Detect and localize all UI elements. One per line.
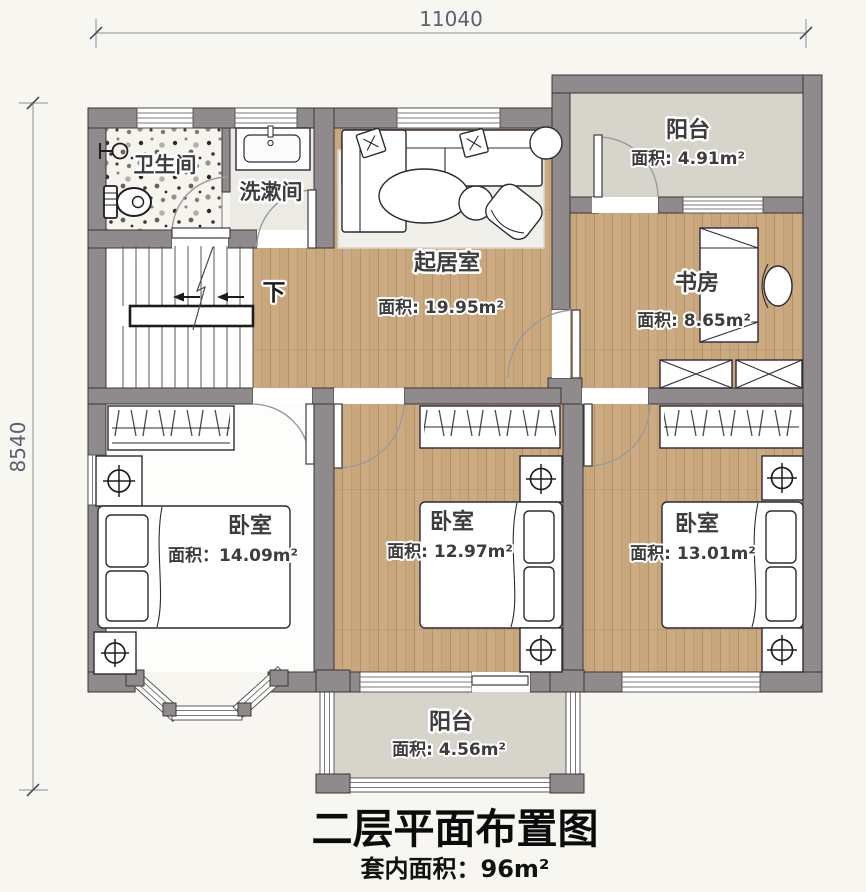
page-subtitle: 套内面积：96m² xyxy=(361,855,550,883)
living-room-area: 面积: 19.95m² xyxy=(378,298,504,318)
wall-balcony-study-b xyxy=(658,197,683,213)
balcony-pier-tr xyxy=(550,670,584,692)
wall-bottom-d xyxy=(760,672,822,692)
wall-bathroom-bottom-a xyxy=(88,230,172,248)
bedroom-right-area: 面积: 13.01m² xyxy=(630,544,756,564)
wardrobe-icon xyxy=(660,406,803,448)
balcony-pier-tl xyxy=(316,670,350,692)
bedroom-middle-area: 面积: 12.97m² xyxy=(387,542,513,562)
balcony-top-floor xyxy=(570,93,803,197)
living-room-furniture xyxy=(338,127,562,248)
balcony-pier-bl xyxy=(316,774,350,793)
side-table-icon xyxy=(530,127,562,159)
wardrobe-icon xyxy=(420,406,560,448)
window-top-1 xyxy=(137,108,193,128)
balcony-bottom-window-left xyxy=(320,690,334,778)
nightstand-icon xyxy=(762,456,803,500)
dimension-left-value: 8540 xyxy=(6,422,30,473)
wardrobe-icon xyxy=(108,406,234,450)
washroom-label: 洗漱间 xyxy=(240,180,303,204)
nightstand-icon xyxy=(96,456,142,506)
window-balcony-study xyxy=(683,197,763,213)
balcony-top-label: 阳台 xyxy=(666,117,710,143)
bedroom-left-area: 面积：14.09m² xyxy=(168,546,298,566)
wall-bathroom-bottom-b xyxy=(228,230,257,248)
wall-balcony-study-c xyxy=(763,197,803,213)
closet-icon xyxy=(660,360,802,388)
balcony-bottom-area: 面积: 4.56m² xyxy=(392,740,506,760)
window-top-3 xyxy=(397,108,500,128)
wall-bedrooms-left-mid xyxy=(314,404,334,672)
bay-pier-2 xyxy=(163,703,176,716)
nightstand-icon xyxy=(762,628,803,672)
stair-handrail xyxy=(130,306,253,326)
wall-washroom-living xyxy=(314,108,334,248)
wall-living-study xyxy=(552,93,570,310)
toilet-icon xyxy=(104,186,151,218)
stairs-down-label: 下 xyxy=(263,280,286,306)
dimension-top: 11040 xyxy=(90,7,812,48)
balcony-bottom-window-right xyxy=(566,690,580,778)
study-area: 面积: 8.65m² xyxy=(637,311,751,331)
page-title: 二层平面布置图 xyxy=(312,805,599,853)
nightstand-icon xyxy=(520,628,562,672)
bedroom-left-label: 卧室 xyxy=(228,513,272,539)
wall-bathroom-washroom xyxy=(222,128,230,192)
window-bedroom-middle xyxy=(360,672,472,692)
bathroom-label: 卫生间 xyxy=(134,153,197,177)
wall-balcony-top xyxy=(552,75,803,93)
bay-window xyxy=(126,667,288,722)
balcony-bottom-label: 阳台 xyxy=(429,709,473,735)
bedroom-middle-label: 卧室 xyxy=(430,509,474,535)
balcony-pier-br xyxy=(550,774,584,793)
wall-bedrooms-mid-right xyxy=(563,404,583,672)
vanity-sink-icon xyxy=(236,126,310,170)
wall-mid-horizontal-pier xyxy=(312,388,334,404)
wall-right xyxy=(803,75,822,692)
bay-pier-3 xyxy=(238,703,251,716)
dimension-left: 8540 xyxy=(6,97,48,796)
wall-mid-horizontal-c xyxy=(648,388,803,404)
window-bedroom-right xyxy=(622,672,760,692)
plan-title: 二层平面布置图 套内面积：96m² xyxy=(312,805,599,883)
nightstand-icon xyxy=(94,632,136,674)
wall-mid-horizontal-b xyxy=(404,388,561,404)
dimension-top-value: 11040 xyxy=(419,7,483,31)
bedroom-right-label: 卧室 xyxy=(675,511,719,537)
nightstand-icon xyxy=(520,456,562,502)
wall-mid-horizontal-a xyxy=(88,388,253,404)
bay-pier-4 xyxy=(270,670,288,686)
window-top-2 xyxy=(235,108,297,128)
balcony-bottom-window-front xyxy=(320,778,580,792)
floor-plan-canvas: 下 xyxy=(0,0,866,892)
washroom-fixtures xyxy=(236,126,310,170)
balcony-top-area: 面积: 4.91m² xyxy=(631,149,745,169)
study-label: 书房 xyxy=(675,270,719,296)
living-room-label: 起居室 xyxy=(413,250,480,276)
door-balcony-bottom xyxy=(472,672,530,692)
